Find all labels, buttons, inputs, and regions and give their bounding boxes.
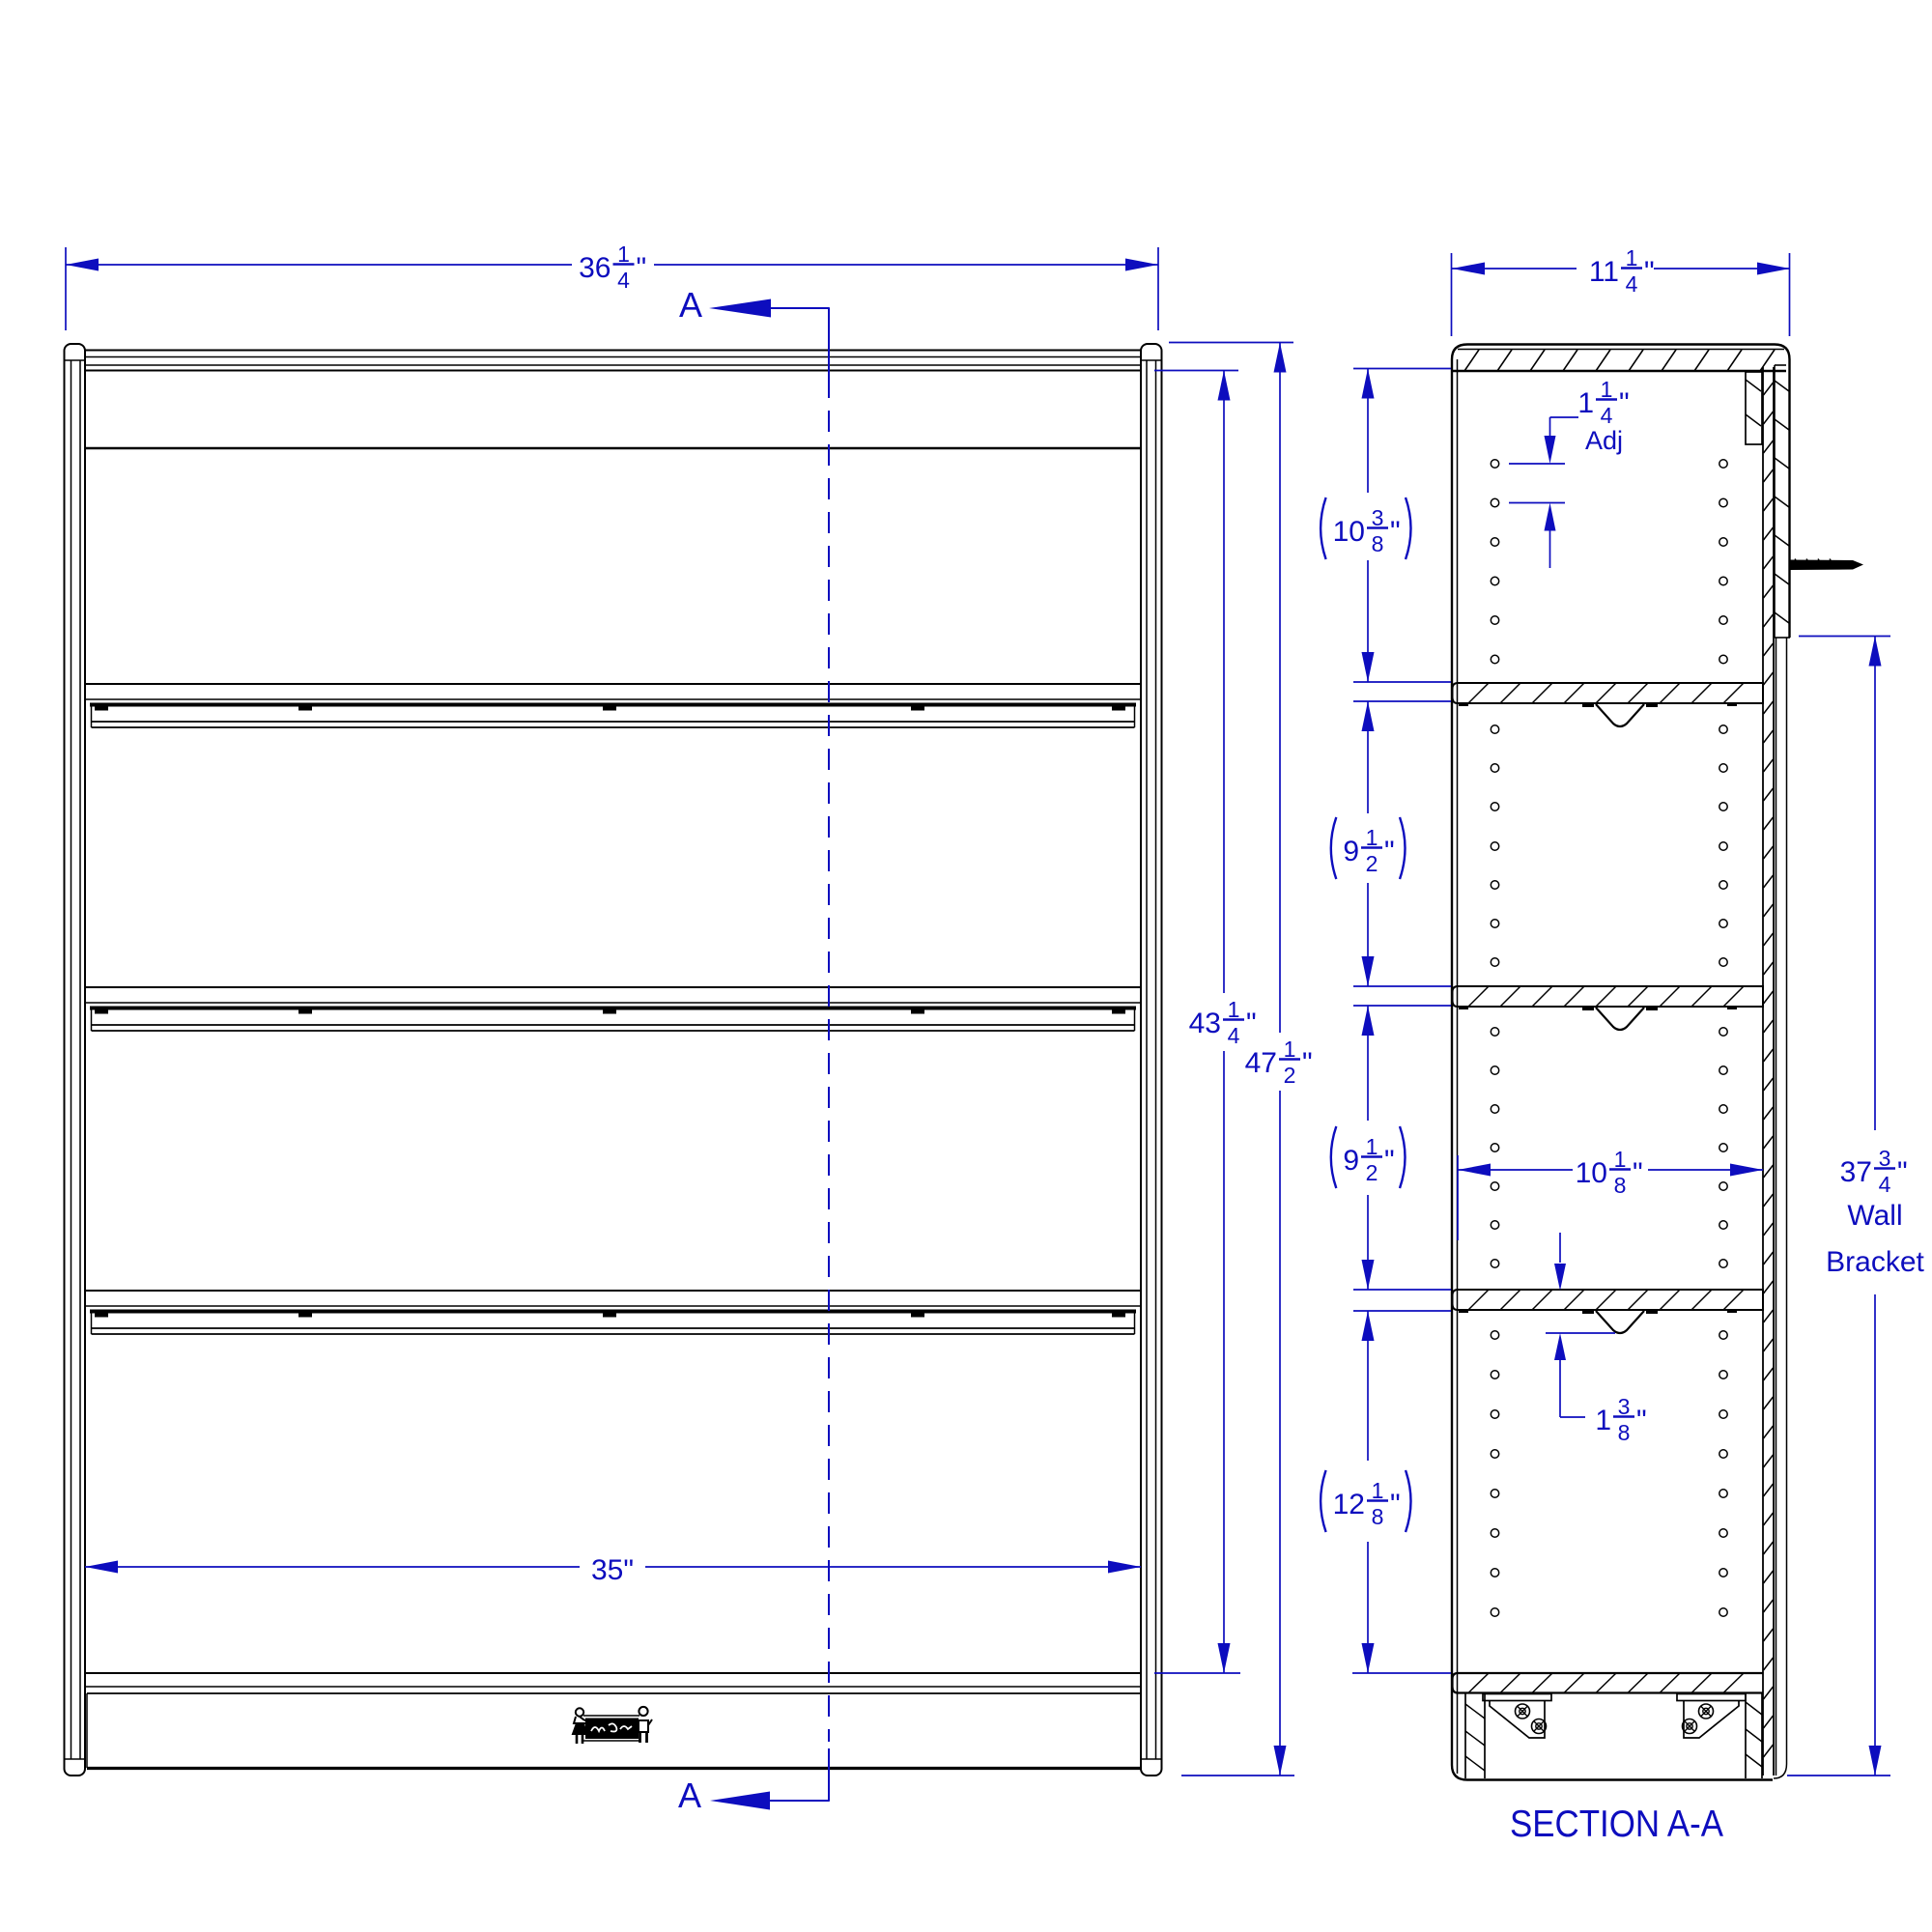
- svg-text:": ": [1384, 836, 1395, 867]
- svg-text:Wall: Wall: [1847, 1200, 1902, 1232]
- svg-text:A: A: [679, 285, 702, 325]
- svg-text:10: 10: [1333, 516, 1365, 548]
- svg-text:1: 1: [1372, 1478, 1384, 1503]
- svg-text:1: 1: [1366, 825, 1378, 850]
- svg-text:12: 12: [1333, 1489, 1365, 1520]
- svg-text:4: 4: [617, 268, 630, 293]
- svg-text:2: 2: [1366, 851, 1378, 876]
- svg-text:9: 9: [1343, 836, 1359, 867]
- svg-text:1: 1: [1614, 1147, 1627, 1172]
- svg-text:3: 3: [1618, 1394, 1631, 1419]
- svg-text:8: 8: [1618, 1420, 1631, 1445]
- svg-text:35": 35": [591, 1554, 634, 1586]
- svg-text:": ": [1302, 1047, 1313, 1079]
- svg-text:47: 47: [1245, 1047, 1277, 1079]
- svg-text:36: 36: [579, 252, 611, 284]
- svg-text:": ": [1390, 516, 1401, 548]
- svg-text:Adj: Adj: [1585, 426, 1623, 455]
- svg-text:4: 4: [1601, 403, 1613, 428]
- svg-text:11: 11: [1589, 256, 1619, 288]
- svg-text:": ": [1633, 1157, 1643, 1189]
- svg-text:43: 43: [1189, 1008, 1221, 1039]
- svg-text:1: 1: [1366, 1134, 1378, 1159]
- svg-text:": ": [637, 252, 647, 284]
- svg-text:1: 1: [1228, 997, 1240, 1022]
- svg-text:": ": [1384, 1145, 1395, 1177]
- svg-text:3: 3: [1372, 505, 1384, 530]
- svg-text:8: 8: [1614, 1173, 1627, 1198]
- svg-text:A: A: [678, 1776, 701, 1815]
- svg-text:": ": [1246, 1008, 1257, 1039]
- svg-text:1: 1: [1577, 387, 1594, 419]
- svg-text:SECTION A-A: SECTION A-A: [1510, 1804, 1723, 1845]
- svg-text:10: 10: [1576, 1157, 1607, 1189]
- svg-text:9: 9: [1343, 1145, 1359, 1177]
- svg-text:": ": [1897, 1156, 1908, 1188]
- svg-text:2: 2: [1284, 1063, 1296, 1088]
- svg-text:4: 4: [1879, 1172, 1891, 1197]
- svg-text:8: 8: [1372, 1504, 1384, 1529]
- svg-text:1: 1: [1601, 377, 1613, 402]
- svg-text:": ": [1636, 1405, 1647, 1436]
- svg-text:Bracket: Bracket: [1826, 1246, 1924, 1278]
- svg-text:37: 37: [1840, 1156, 1872, 1188]
- svg-text:4: 4: [1228, 1023, 1240, 1048]
- svg-text:1: 1: [617, 241, 630, 267]
- svg-text:": ": [1619, 387, 1630, 419]
- svg-text:2: 2: [1366, 1160, 1378, 1185]
- svg-text:1: 1: [1595, 1405, 1611, 1436]
- svg-text:8: 8: [1372, 531, 1384, 556]
- svg-text:1: 1: [1626, 245, 1638, 270]
- svg-text:1: 1: [1284, 1037, 1296, 1062]
- svg-text:": ": [1644, 256, 1655, 288]
- svg-text:3: 3: [1879, 1146, 1891, 1171]
- svg-text:": ": [1390, 1489, 1401, 1520]
- svg-text:4: 4: [1626, 271, 1638, 297]
